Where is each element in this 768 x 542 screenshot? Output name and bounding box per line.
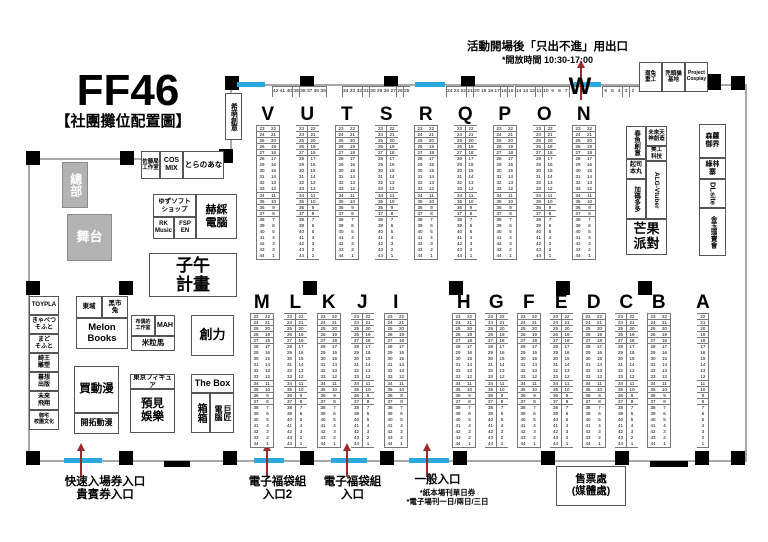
booth-cell: 30 <box>284 356 295 362</box>
booth-cell: 27 <box>336 150 347 156</box>
booth-cell: 12 <box>329 374 340 380</box>
booth-cell: 20 <box>296 326 307 332</box>
booth-cell: 30 <box>518 356 529 362</box>
booth-cell: 17 <box>594 344 605 350</box>
booth-cell: 39 <box>318 411 329 417</box>
booth-baldcat-base: 禿頭貓 基地 <box>662 62 685 92</box>
booth-cell: 17 <box>308 156 319 162</box>
booth-cell: 11 <box>497 381 508 387</box>
ticket-office: 售票處 (媒體處) <box>556 466 626 506</box>
booth-cell: 3 <box>466 241 477 247</box>
booth-cell: 22 <box>545 126 556 132</box>
booth-column-b: B232224212520261927182817291630153114321… <box>647 292 671 448</box>
booth-cell: 34 <box>453 381 464 387</box>
booth-cell: 32 <box>351 368 362 374</box>
booth-cell: 18 <box>329 338 340 344</box>
booth-cell: 12 <box>296 374 307 380</box>
booth-cell: 19 <box>659 332 670 338</box>
booth-cell: 44 <box>518 441 529 447</box>
booth-cell: 34 <box>494 193 505 199</box>
booth-tokyofigure: 東京フィギュア <box>130 374 175 389</box>
booth-cell: 6 <box>545 223 556 229</box>
booth-cell: 31 <box>296 174 307 180</box>
booth-cell: 12 <box>497 374 508 380</box>
booth-cell: 9 <box>396 393 407 399</box>
booth-cell: 34 <box>454 193 465 199</box>
booth-cell: 13 <box>505 180 516 186</box>
booth-cell: 1 <box>529 441 540 447</box>
booth-cell: 43 <box>518 435 529 441</box>
booth-cell: 28 <box>494 156 505 162</box>
booth-cell: 18 <box>627 338 638 344</box>
booth-cell: 14 <box>466 174 477 180</box>
booth-cell: 22 <box>347 126 358 132</box>
booth-grid: 2322242125202619271828172916301531143213… <box>375 125 399 260</box>
booth-cell: 2 <box>308 247 319 253</box>
booth-cell: 16 <box>262 350 273 356</box>
booth-cell: 13 <box>262 368 273 374</box>
booth-cell: 16 <box>697 350 708 356</box>
booth-cell: 16 <box>627 350 638 356</box>
booth-cell: 30 <box>485 356 496 362</box>
booth-cell: 17 <box>268 156 279 162</box>
booth-grid: 2322242125202619271828172916301531143213… <box>647 313 671 448</box>
booth-cell: 10 <box>466 199 477 205</box>
booth-cell: 20 <box>426 138 437 144</box>
booth-cell: 42 <box>453 429 464 435</box>
booth-cell: 21 <box>363 320 374 326</box>
booth-cell: 10 <box>543 87 549 97</box>
booth-cell: 33 <box>349 87 355 97</box>
booth-cell: 37 <box>573 211 584 217</box>
booth-cell: 20 <box>268 138 279 144</box>
booth-cell: 17 <box>329 344 340 350</box>
booth-cell: 42 <box>583 429 594 435</box>
booth-mycomic: 買動漫 <box>74 366 119 413</box>
booth-cell: 8 <box>296 399 307 405</box>
booth-cell: 35 <box>375 199 386 205</box>
booth-cell: 29 <box>376 87 382 97</box>
booth-cell: 18 <box>594 338 605 344</box>
booth-cell: 13 <box>296 368 307 374</box>
booth-cell: 10 <box>262 387 273 393</box>
booth-cell: 3 <box>505 241 516 247</box>
booth-cell: 3 <box>594 429 605 435</box>
booth-cell: 34 <box>573 193 584 199</box>
booth-cell: 44 <box>485 441 496 447</box>
booth-cell: 42 <box>454 241 465 247</box>
booth-cell: 10 <box>329 387 340 393</box>
booth-cell: 17 <box>529 344 540 350</box>
booth-grid: 2322242125202619271828172916301531143213… <box>533 125 557 260</box>
booth-cell: 21 <box>262 320 273 326</box>
booth-cell: 40 <box>318 417 329 423</box>
booth-cell: 19 <box>387 144 398 150</box>
booth-cell: 17 <box>466 156 477 162</box>
booth-cell: 3 <box>627 429 638 435</box>
booth-cell: 9 <box>505 205 516 211</box>
booth-grid: 2322242125202619271828172916301531143213… <box>452 313 476 448</box>
booth-cell: 4 <box>363 423 374 429</box>
booth-cell: 20 <box>584 138 595 144</box>
booth-cell: 21 <box>387 132 398 138</box>
booth-cell: 18 <box>426 150 437 156</box>
booth-cell: 14 <box>387 174 398 180</box>
booth-cell: 27 <box>390 87 396 97</box>
booth-section-bottom-right: H232224212520261927182817291630153114321… <box>452 292 671 448</box>
booth-gjun: 巨匠 電腦 <box>210 393 234 433</box>
booth-cell: 4 <box>562 423 573 429</box>
booth-cell: 36 <box>533 205 544 211</box>
booth-cell: 21 <box>347 132 358 138</box>
booth-cell: 8 <box>268 211 279 217</box>
booth-cell: 9 <box>387 205 398 211</box>
booth-cell: 32 <box>485 368 496 374</box>
booth-cell: 4 <box>464 423 475 429</box>
booth-cell: 31 <box>375 174 386 180</box>
booth-cell: 16 <box>529 350 540 356</box>
booth-project-cosplay: Project Cosplay <box>685 62 708 92</box>
booth-cell: 19 <box>426 144 437 150</box>
booth-column-k: K232224212520261927182817291630153114321… <box>317 292 341 448</box>
booth-cell: 26 <box>351 332 362 338</box>
booth-cell: 28 <box>251 344 262 350</box>
booth-cell: 27 <box>257 150 268 156</box>
booth-cell: 7 <box>594 405 605 411</box>
booth-cell: 23 <box>318 314 329 320</box>
pillar <box>26 151 40 165</box>
booth-cell: 12 <box>387 186 398 192</box>
booth-cell: 20 <box>594 326 605 332</box>
booth-cell: 6 <box>262 411 273 417</box>
booth-cell: 26 <box>397 87 403 97</box>
booth-cell: 12 <box>659 374 670 380</box>
booth-cell: 21 <box>396 320 407 326</box>
booth-cell: 3 <box>268 241 279 247</box>
booth-cell: 5 <box>594 417 605 423</box>
booth-cell: 10 <box>659 387 670 393</box>
booth-cell: 5 <box>329 417 340 423</box>
booth-cell: 23 <box>615 314 626 320</box>
booth-kaitaku: 開拓動漫 <box>74 413 119 434</box>
booth-cell: 33 <box>351 374 362 380</box>
booth-cell: 44 <box>583 441 594 447</box>
booth-cell: 18 <box>396 338 407 344</box>
booth-cell: 13 <box>594 368 605 374</box>
booth-cell: 38 <box>453 405 464 411</box>
booth-cell: 20 <box>308 138 319 144</box>
booth-cell: 5 <box>497 417 508 423</box>
booth-cell: 33 <box>615 374 626 380</box>
booth-cell: 6 <box>584 223 595 229</box>
booth-grid: 2322242125202619271828172916301531143213… <box>414 125 438 260</box>
booth-column-s: S232224212520261927182817291630153114321… <box>375 104 399 260</box>
booth-cell: 9 <box>584 205 595 211</box>
booth-cell: 17 <box>396 344 407 350</box>
booth-cell: 39 <box>251 411 262 417</box>
booth-cell: 7 <box>464 405 475 411</box>
booth-cell: 5 <box>268 229 279 235</box>
booth-cell: 38 <box>284 405 295 411</box>
booth-cell: 24 <box>518 320 529 326</box>
booth-cell: 24 <box>284 320 295 326</box>
booth-hq: 總部 <box>62 162 88 208</box>
booth-cell: 32 <box>648 368 659 374</box>
booth-cell: 23 <box>583 314 594 320</box>
booth-cell: 28 <box>454 156 465 162</box>
pillar <box>26 281 40 295</box>
booth-cell: 41 <box>279 87 285 97</box>
booth-cell: 37 <box>485 399 496 405</box>
booth-cell: 22 <box>594 314 605 320</box>
booth-cell: 29 <box>336 162 347 168</box>
booth-cell: 1 <box>396 441 407 447</box>
booth-cell: 13 <box>545 180 556 186</box>
booth-cell: 6 <box>329 411 340 417</box>
booth-cell: 26 <box>415 144 426 150</box>
booth-cell: 40 <box>415 229 426 235</box>
booth-cell: 6 <box>659 411 670 417</box>
booth-cell: 31 <box>453 362 464 368</box>
booth-cell: 15 <box>594 356 605 362</box>
booth-cell: 15 <box>697 356 708 362</box>
booth-cell: 28 <box>336 156 347 162</box>
booth-cell: 35 <box>351 387 362 393</box>
booth-cell: 3 <box>697 429 708 435</box>
booth-cell: 38 <box>257 217 268 223</box>
booth-cell: 39 <box>583 411 594 417</box>
booth-cell: 31 <box>385 362 396 368</box>
booth-cell: 44 <box>318 441 329 447</box>
booth-cell: 27 <box>454 150 465 156</box>
booth-cell: 1 <box>497 441 508 447</box>
booth-cell: 10 <box>505 199 516 205</box>
booth-cell: 33 <box>296 186 307 192</box>
booth-cell: 3 <box>659 429 670 435</box>
entrance-note-digital: *電子場刊一日/兩日/三日 <box>380 497 515 507</box>
booth-cell: 16 <box>497 350 508 356</box>
booth-cell: 17 <box>296 344 307 350</box>
booth-cell: 43 <box>573 247 584 253</box>
booth-cell: 13 <box>363 368 374 374</box>
booth-cell: 16 <box>501 87 507 97</box>
booth-cell: 24 <box>336 132 347 138</box>
booth-cell: 14 <box>594 362 605 368</box>
booth-cell: 19 <box>262 332 273 338</box>
booth-cell: 8 <box>562 399 573 405</box>
booth-cell: 18 <box>697 338 708 344</box>
booth-cell: 44 <box>385 441 396 447</box>
booth-cell: 3 <box>623 87 629 97</box>
booth-cell: 39 <box>615 411 626 417</box>
booth-cell: 21 <box>594 320 605 326</box>
booth-cell: 3 <box>347 241 358 247</box>
booth-cell: 2 <box>466 247 477 253</box>
booth-cell: 24 <box>375 132 386 138</box>
booth-cell: 41 <box>573 235 584 241</box>
booth-cell: 26 <box>494 144 505 150</box>
booth-cell: 1 <box>505 253 516 259</box>
booth-cell: 40 <box>573 229 584 235</box>
booth-cell: 43 <box>318 435 329 441</box>
booth-cell: 32 <box>518 368 529 374</box>
booth-cell: 25 <box>284 326 295 332</box>
booth-cell: 28 <box>318 344 329 350</box>
booth-cell: 12 <box>262 374 273 380</box>
booth-cell: 32 <box>375 180 386 186</box>
booth-cell: 4 <box>308 235 319 241</box>
booth-cell: 33 <box>257 186 268 192</box>
booth-cell: 9 <box>549 87 555 97</box>
booth-section-top: V232224212520261927182817291630153114321… <box>256 104 596 260</box>
booth-cell: 20 <box>464 326 475 332</box>
booth-cell: 18 <box>363 338 374 344</box>
booth-cell: 9 <box>296 393 307 399</box>
booth-cell: 5 <box>308 229 319 235</box>
booth-cell: 25 <box>404 87 410 97</box>
booth-cell: 26 <box>518 332 529 338</box>
booth-cell: 20 <box>697 326 708 332</box>
column-letter: E <box>555 292 568 313</box>
booth-cell: 35 <box>550 387 561 393</box>
booth-cell: 29 <box>296 162 307 168</box>
booth-cell: 41 <box>257 235 268 241</box>
booth-yujian: 預見 娛樂 <box>130 389 175 433</box>
booth-cell: 21 <box>497 320 508 326</box>
booth-cell: 29 <box>284 350 295 356</box>
booth-cell: 18 <box>308 150 319 156</box>
booth-cell: 39 <box>518 411 529 417</box>
booth-cell: 16 <box>308 162 319 168</box>
booth-cell: 35 <box>284 387 295 393</box>
booth-cell: 14 <box>268 174 279 180</box>
booth-cell: 26 <box>648 332 659 338</box>
booth-cell: 27 <box>415 150 426 156</box>
booth-cell: 8 <box>594 399 605 405</box>
booth-cell: 19 <box>480 87 486 97</box>
booth-cell: 9 <box>268 205 279 211</box>
booth-cell: 17 <box>627 344 638 350</box>
booth-cell: 20 <box>363 326 374 332</box>
column-letter: V <box>261 104 274 125</box>
booth-cell: 19 <box>627 332 638 338</box>
booth-cell: 1 <box>363 441 374 447</box>
booth-cell: 23 <box>296 126 307 132</box>
booth-cell: 27 <box>318 338 329 344</box>
booth-cell: 8 <box>497 399 508 405</box>
booth-cell: 18 <box>487 87 493 97</box>
booth-cell: 17 <box>363 344 374 350</box>
booth-cell: 27 <box>385 338 396 344</box>
booth-cell: 43 <box>296 247 307 253</box>
booth-cell: 26 <box>375 144 386 150</box>
booth-cell: 16 <box>584 162 595 168</box>
booth-cell: 10 <box>308 199 319 205</box>
booth-column-o: O232224212520261927182817291630153114321… <box>533 104 557 260</box>
column-letter: F <box>523 292 535 313</box>
booth-cell: 34 <box>296 193 307 199</box>
booth-cell: 34 <box>336 193 347 199</box>
booth-column-c: C232224212520261927182817291630153114321… <box>615 292 639 448</box>
booth-cell: 14 <box>426 174 437 180</box>
booth-cell: 37 <box>415 211 426 217</box>
booth-cell: 13 <box>584 180 595 186</box>
booth-cell: 36 <box>453 393 464 399</box>
booth-cell: 33 <box>284 374 295 380</box>
booth-cell: 21 <box>627 320 638 326</box>
booth-cell: 39 <box>454 223 465 229</box>
booth-cell: 31 <box>615 362 626 368</box>
booth-cell: 9 <box>659 393 670 399</box>
booth-cell: 4 <box>268 235 279 241</box>
booth-cell: 6 <box>505 223 516 229</box>
booth-cell: 2 <box>387 247 398 253</box>
booth-cell: 44 <box>550 441 561 447</box>
booth-cell: 35 <box>257 199 268 205</box>
booth-cell: 35 <box>583 387 594 393</box>
booth-cell: 21 <box>466 132 477 138</box>
booth-cell: 15 <box>466 168 477 174</box>
booth-cell: 34 <box>550 381 561 387</box>
booth-cell: 18 <box>387 150 398 156</box>
booth-cell: 28 <box>648 344 659 350</box>
booth-cell: 42 <box>550 429 561 435</box>
booth-cell: 37 <box>494 211 505 217</box>
booth-cell: 37 <box>257 211 268 217</box>
booth-jiama: 加碼多多 <box>626 179 646 219</box>
booth-section-a: A22212019181716151413121110987654321 <box>696 292 710 448</box>
booth-cell: 14 <box>659 362 670 368</box>
booth-cell: 13 <box>464 368 475 374</box>
booth-cell: 10 <box>545 199 556 205</box>
booth-cell: 43 <box>415 247 426 253</box>
booth-cell: 25 <box>336 138 347 144</box>
booth-cell: 16 <box>505 162 516 168</box>
booth-cell: 33 <box>415 186 426 192</box>
booth-cell: 44 <box>296 253 307 259</box>
booth-cell: 33 <box>385 374 396 380</box>
booth-cell: 24 <box>318 320 329 326</box>
booth-column-h: H232224212520261927182817291630153114321… <box>452 292 476 448</box>
booth-cell: 8 <box>505 211 516 217</box>
booth-cell: 24 <box>385 320 396 326</box>
booth-cell: 23 <box>284 314 295 320</box>
booth-cell: 29 <box>351 350 362 356</box>
booth-cell: 32 <box>336 180 347 186</box>
booth-cell: 13 <box>697 368 708 374</box>
booth-cell: 39 <box>257 223 268 229</box>
booth-cell: 14 <box>697 362 708 368</box>
booth-cell: 9 <box>464 393 475 399</box>
booth-cell: 31 <box>583 362 594 368</box>
booth-cell: 16 <box>464 350 475 356</box>
column-letter: D <box>587 292 601 313</box>
booth-cell: 19 <box>505 144 516 150</box>
column-letter: Q <box>458 104 473 125</box>
booth-cell: 6 <box>497 411 508 417</box>
booth-cell: 3 <box>296 429 307 435</box>
booth-cell: 6 <box>396 411 407 417</box>
booth-cell: 6 <box>296 411 307 417</box>
booth-cell: 10 <box>627 387 638 393</box>
booth-cell: 14 <box>308 174 319 180</box>
booth-cell: 10 <box>497 387 508 393</box>
booth-cell: 19 <box>594 332 605 338</box>
booth-cell: 25 <box>573 138 584 144</box>
booth-melonbooks: Melon Books <box>76 318 128 349</box>
booth-grid: 2322242125202619271828172916301531143213… <box>351 313 375 448</box>
booth-cell: 30 <box>550 356 561 362</box>
